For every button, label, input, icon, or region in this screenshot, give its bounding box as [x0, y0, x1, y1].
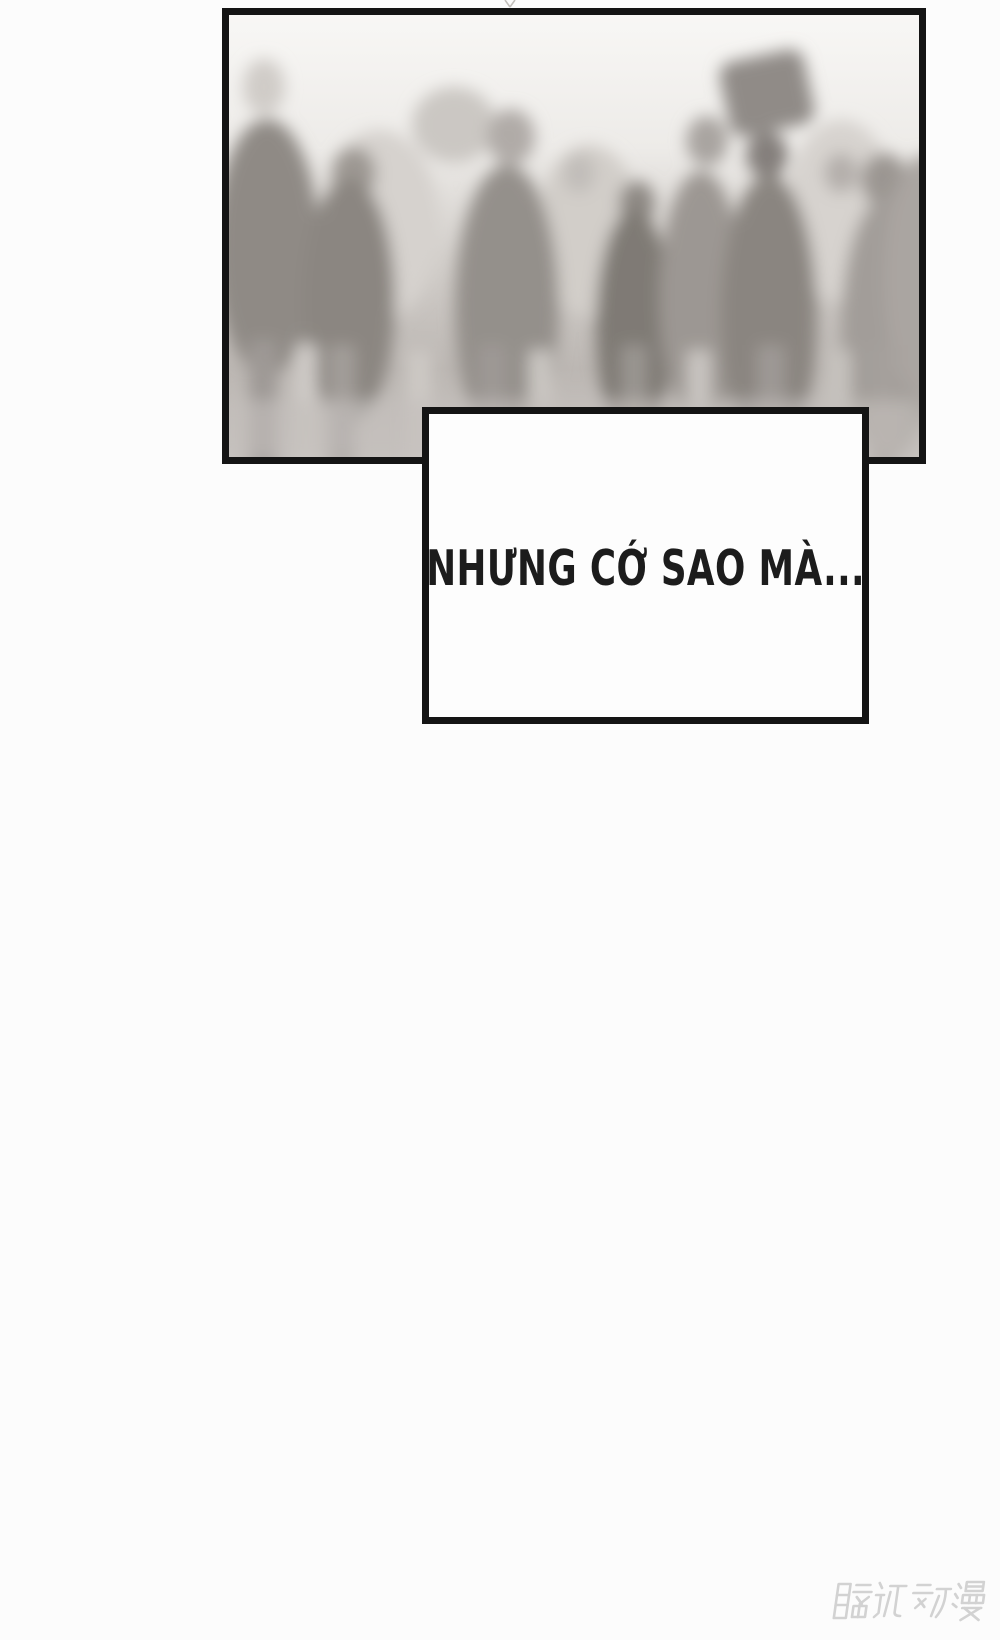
crowd-illustration — [229, 15, 919, 457]
caption-text: NHƯNG CỚ SAO MÀ... — [426, 540, 865, 598]
bubble-tail-remnant — [498, 0, 522, 8]
crowd-panel — [222, 8, 926, 464]
comic-page: { "caption": { "text": "NHƯNG CỚ SAO MÀ.… — [0, 0, 1000, 1640]
tencent-comics-watermark — [828, 1574, 986, 1630]
caption-box: NHƯNG CỚ SAO MÀ... — [422, 407, 869, 724]
